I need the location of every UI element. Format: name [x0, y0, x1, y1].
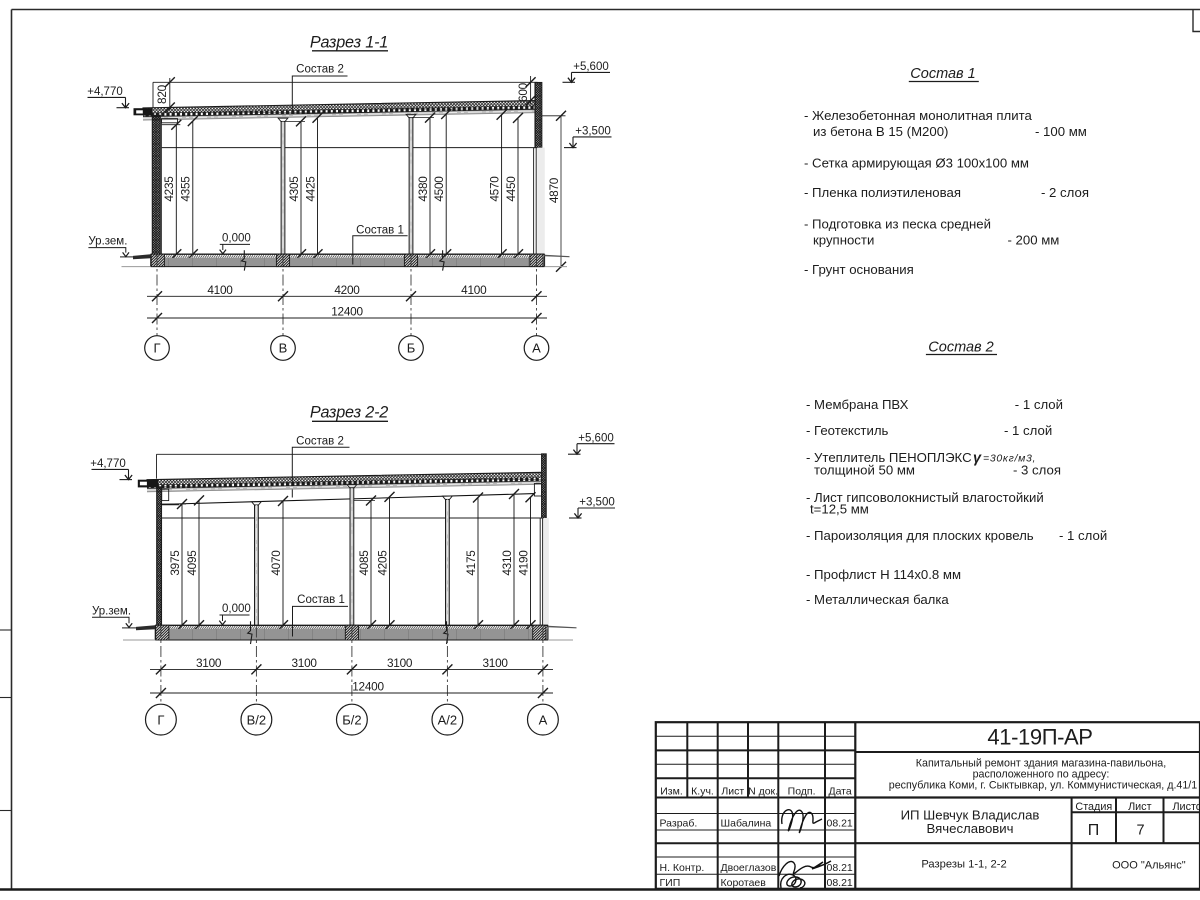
svg-text:Состав 2: Состав 2 — [296, 435, 344, 447]
svg-text:+4,770: +4,770 — [90, 458, 126, 470]
svg-text:- Пароизоляция для плоских кро: - Пароизоляция для плоских кровель — [806, 528, 1034, 543]
svg-text:4425: 4425 — [303, 176, 317, 202]
svg-text:+4,770: +4,770 — [87, 86, 123, 98]
svg-text:Изм.: Изм. — [660, 785, 683, 797]
svg-text:4100: 4100 — [461, 283, 487, 297]
svg-text:А/2: А/2 — [438, 712, 458, 727]
svg-text:N док.: N док. — [748, 785, 778, 797]
svg-text:Стадия: Стадия — [1075, 801, 1112, 813]
svg-text:- 200 мм: - 200 мм — [1008, 232, 1060, 247]
svg-text:Б/2: Б/2 — [342, 712, 361, 727]
svg-text:4305: 4305 — [287, 176, 301, 202]
svg-text:- Пленка полиэтиленовая: - Пленка полиэтиленовая — [804, 185, 961, 200]
svg-text:республика Коми, г. Сыктывкар,: республика Коми, г. Сыктывкар, ул. Комму… — [889, 780, 1197, 792]
svg-text:Г: Г — [153, 341, 160, 356]
svg-text:4200: 4200 — [334, 283, 360, 297]
svg-text:4100: 4100 — [207, 283, 233, 297]
svg-text:4380: 4380 — [416, 176, 430, 202]
svg-text:3100: 3100 — [387, 656, 413, 670]
svg-text:7: 7 — [1136, 823, 1144, 839]
svg-text:Разрезы 1-1, 2-2: Разрезы 1-1, 2-2 — [921, 859, 1006, 871]
svg-text:Дата: Дата — [828, 785, 851, 797]
svg-text:- 1 слой: - 1 слой — [1059, 528, 1107, 543]
svg-text:600: 600 — [516, 82, 530, 102]
svg-text:Ур.зем.: Ур.зем. — [92, 605, 131, 617]
svg-text:Листов: Листов — [1172, 801, 1200, 813]
svg-text:ООО "Альянс": ООО "Альянс" — [1112, 860, 1186, 872]
svg-text:Разраб.: Разраб. — [660, 818, 698, 830]
svg-text:Коротаев: Коротаев — [721, 877, 767, 889]
svg-text:08.21: 08.21 — [827, 862, 853, 874]
svg-text:γ: γ — [973, 450, 982, 466]
svg-text:А: А — [539, 712, 548, 727]
svg-text:t=12,5 мм: t=12,5 мм — [810, 502, 869, 517]
svg-text:Б: Б — [407, 341, 416, 356]
svg-text:3975: 3975 — [168, 550, 182, 576]
svg-text:4870: 4870 — [547, 177, 561, 203]
svg-text:- 100 мм: - 100 мм — [1035, 124, 1087, 139]
svg-text:Состав 2: Состав 2 — [928, 340, 993, 356]
svg-text:Лист: Лист — [721, 785, 744, 797]
svg-text:П: П — [1088, 822, 1100, 839]
svg-text:4570: 4570 — [487, 176, 501, 202]
svg-text:Лист: Лист — [1128, 801, 1152, 813]
svg-text:Подп.: Подп. — [788, 785, 816, 797]
svg-text:ГИП: ГИП — [660, 877, 681, 889]
svg-text:820: 820 — [155, 84, 169, 104]
svg-text:4190: 4190 — [516, 550, 530, 576]
svg-text:+5,600: +5,600 — [573, 61, 609, 73]
svg-text:+3,500: +3,500 — [579, 497, 615, 509]
svg-text:Разрез 1-1: Разрез 1-1 — [310, 34, 388, 52]
svg-text:4500: 4500 — [432, 176, 446, 202]
svg-text:Состав 1: Состав 1 — [910, 66, 975, 82]
svg-text:А: А — [532, 341, 541, 356]
svg-text:0,000: 0,000 — [222, 603, 251, 615]
svg-text:Разрез 2-2: Разрез 2-2 — [310, 404, 388, 422]
svg-text:Состав 1: Состав 1 — [297, 594, 345, 606]
svg-text:Состав 2: Состав 2 — [296, 64, 344, 76]
svg-text:В/2: В/2 — [247, 712, 267, 727]
svg-text:4450: 4450 — [504, 176, 518, 202]
svg-text:- Геотекстиль: - Геотекстиль — [806, 423, 889, 438]
svg-text:4205: 4205 — [375, 550, 389, 576]
svg-text:12400: 12400 — [331, 305, 363, 319]
svg-text:3100: 3100 — [291, 656, 317, 670]
svg-text:4085: 4085 — [357, 550, 371, 576]
svg-text:- Подготовка из песка средней: - Подготовка из песка средней — [804, 217, 991, 232]
svg-text:08.21: 08.21 — [827, 818, 853, 830]
svg-text:3100: 3100 — [196, 656, 222, 670]
svg-text:Шабалина: Шабалина — [721, 818, 772, 830]
svg-text:4175: 4175 — [464, 550, 478, 576]
svg-text:- 2 слоя: - 2 слоя — [1041, 185, 1089, 200]
svg-text:4235: 4235 — [162, 176, 176, 202]
svg-text:41-19П-АР: 41-19П-АР — [987, 725, 1092, 750]
svg-text:- Металлическая балка: - Металлическая балка — [806, 592, 949, 607]
svg-text:- 3 слоя: - 3 слоя — [1013, 462, 1061, 477]
svg-text:Ур.зем.: Ур.зем. — [88, 236, 127, 248]
svg-text:крупности: крупности — [813, 232, 874, 247]
svg-text:- 1 слой: - 1 слой — [1015, 397, 1063, 412]
svg-text:В: В — [279, 341, 288, 356]
svg-text:- Грунт основания: - Грунт основания — [804, 262, 914, 277]
svg-text:- 1 слой: - 1 слой — [1004, 423, 1052, 438]
svg-text:12400: 12400 — [352, 680, 384, 694]
svg-text:- Профлист Н 114х0.8 мм: - Профлист Н 114х0.8 мм — [806, 567, 961, 582]
svg-text:+3,500: +3,500 — [575, 126, 611, 138]
svg-text:+5,600: +5,600 — [578, 432, 614, 444]
svg-text:Г: Г — [157, 712, 164, 727]
svg-text:08.21: 08.21 — [827, 877, 853, 889]
svg-text:3100: 3100 — [482, 656, 508, 670]
svg-text:4095: 4095 — [185, 550, 199, 576]
svg-text:4355: 4355 — [179, 176, 193, 202]
svg-text:Состав 1: Состав 1 — [356, 225, 404, 237]
svg-text:Вячеславович: Вячеславович — [926, 821, 1013, 836]
svg-text:- Железобетонная монолитная п: - Железобетонная монолитная плита — [804, 108, 1033, 123]
svg-text:4310: 4310 — [500, 550, 514, 576]
svg-text:0,000: 0,000 — [222, 233, 251, 245]
svg-text:из бетона В 15 (М200): из бетона В 15 (М200) — [813, 124, 948, 139]
svg-text:К.уч.: К.уч. — [691, 785, 714, 797]
svg-text:Двоеглазов: Двоеглазов — [721, 862, 777, 874]
svg-text:4070: 4070 — [269, 550, 283, 576]
svg-text:- Мембрана ПВХ: - Мембрана ПВХ — [806, 397, 909, 412]
svg-text:толщиной 50 мм: толщиной 50 мм — [814, 462, 915, 477]
svg-text:Н. Контр.: Н. Контр. — [660, 862, 705, 874]
svg-text:- Сетка армирующая Ø3 100х100: - Сетка армирующая Ø3 100х100 мм — [804, 155, 1029, 170]
